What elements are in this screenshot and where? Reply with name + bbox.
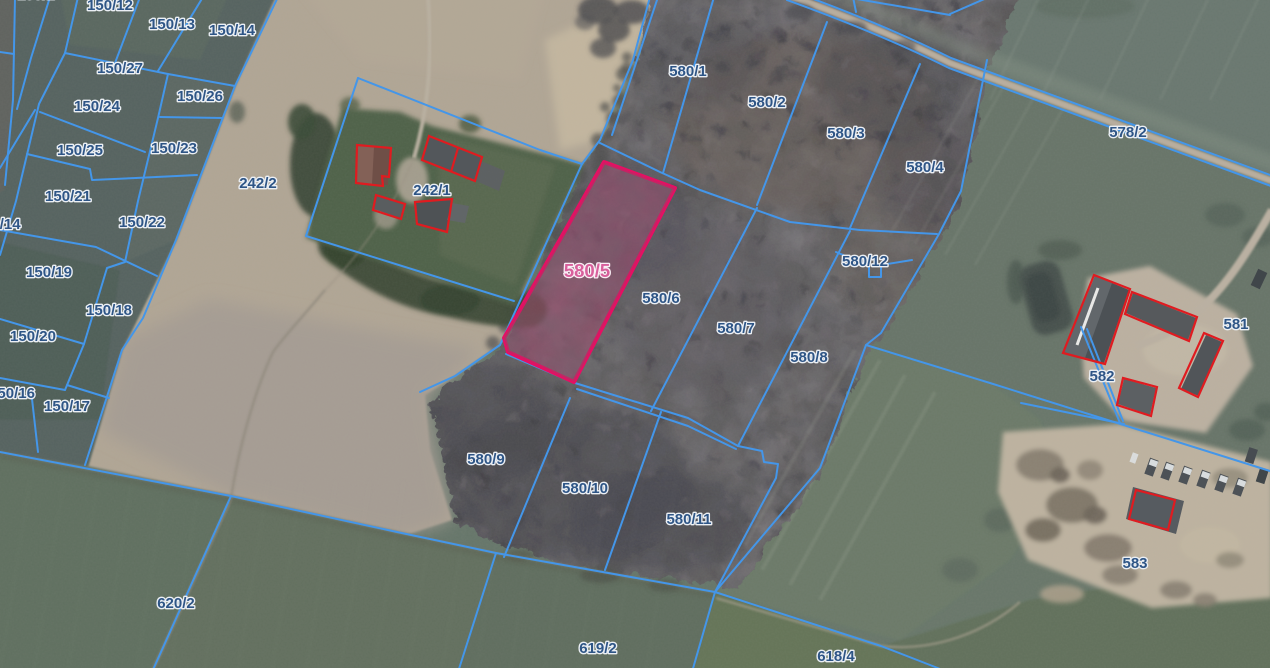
svg-text:150/22: 150/22 [119,214,165,231]
svg-text:150/27: 150/27 [97,60,143,77]
svg-text:9/14: 9/14 [0,216,21,233]
svg-text:150/12: 150/12 [87,0,133,14]
svg-text:620/2: 620/2 [157,595,195,612]
svg-text:582: 582 [1089,368,1114,385]
svg-text:580/5: 580/5 [564,260,610,281]
svg-text:150/26: 150/26 [177,88,223,105]
svg-text:619/2: 619/2 [579,640,617,657]
svg-text:150/24: 150/24 [74,98,121,115]
svg-text:578/2: 578/2 [1109,124,1147,141]
svg-text:242/1: 242/1 [413,182,451,199]
svg-text:150/19: 150/19 [26,264,72,281]
svg-text:580/12: 580/12 [842,253,888,270]
svg-text:580/6: 580/6 [642,290,680,307]
svg-text:577: 577 [787,0,812,2]
svg-text:150/14: 150/14 [209,22,256,39]
svg-text:150/17: 150/17 [44,398,90,415]
svg-text:580/3: 580/3 [827,125,865,142]
svg-text:150/13: 150/13 [149,16,195,33]
svg-text:583: 583 [1122,555,1147,572]
svg-text:580/10: 580/10 [562,480,608,497]
svg-text:150/21: 150/21 [45,188,91,205]
svg-text:580/7: 580/7 [717,320,755,337]
svg-text:580/4: 580/4 [906,159,944,176]
svg-text:580/2: 580/2 [748,94,786,111]
svg-text:150/20: 150/20 [10,328,56,345]
svg-text:578/1: 578/1 [1002,0,1040,2]
svg-text:580/8: 580/8 [790,349,828,366]
svg-text:150/18: 150/18 [86,302,132,319]
svg-text:580/11: 580/11 [666,511,711,528]
svg-text:150/16: 150/16 [0,385,35,402]
svg-text:581: 581 [1223,316,1248,333]
svg-text:580/1: 580/1 [669,63,707,80]
svg-text:150/25: 150/25 [57,142,103,159]
svg-text:580/9: 580/9 [467,451,505,468]
svg-text:150/23: 150/23 [151,140,197,157]
svg-text:242/2: 242/2 [239,175,277,192]
svg-text:618/4: 618/4 [817,648,855,665]
svg-text:150/1: 150/1 [17,0,55,3]
